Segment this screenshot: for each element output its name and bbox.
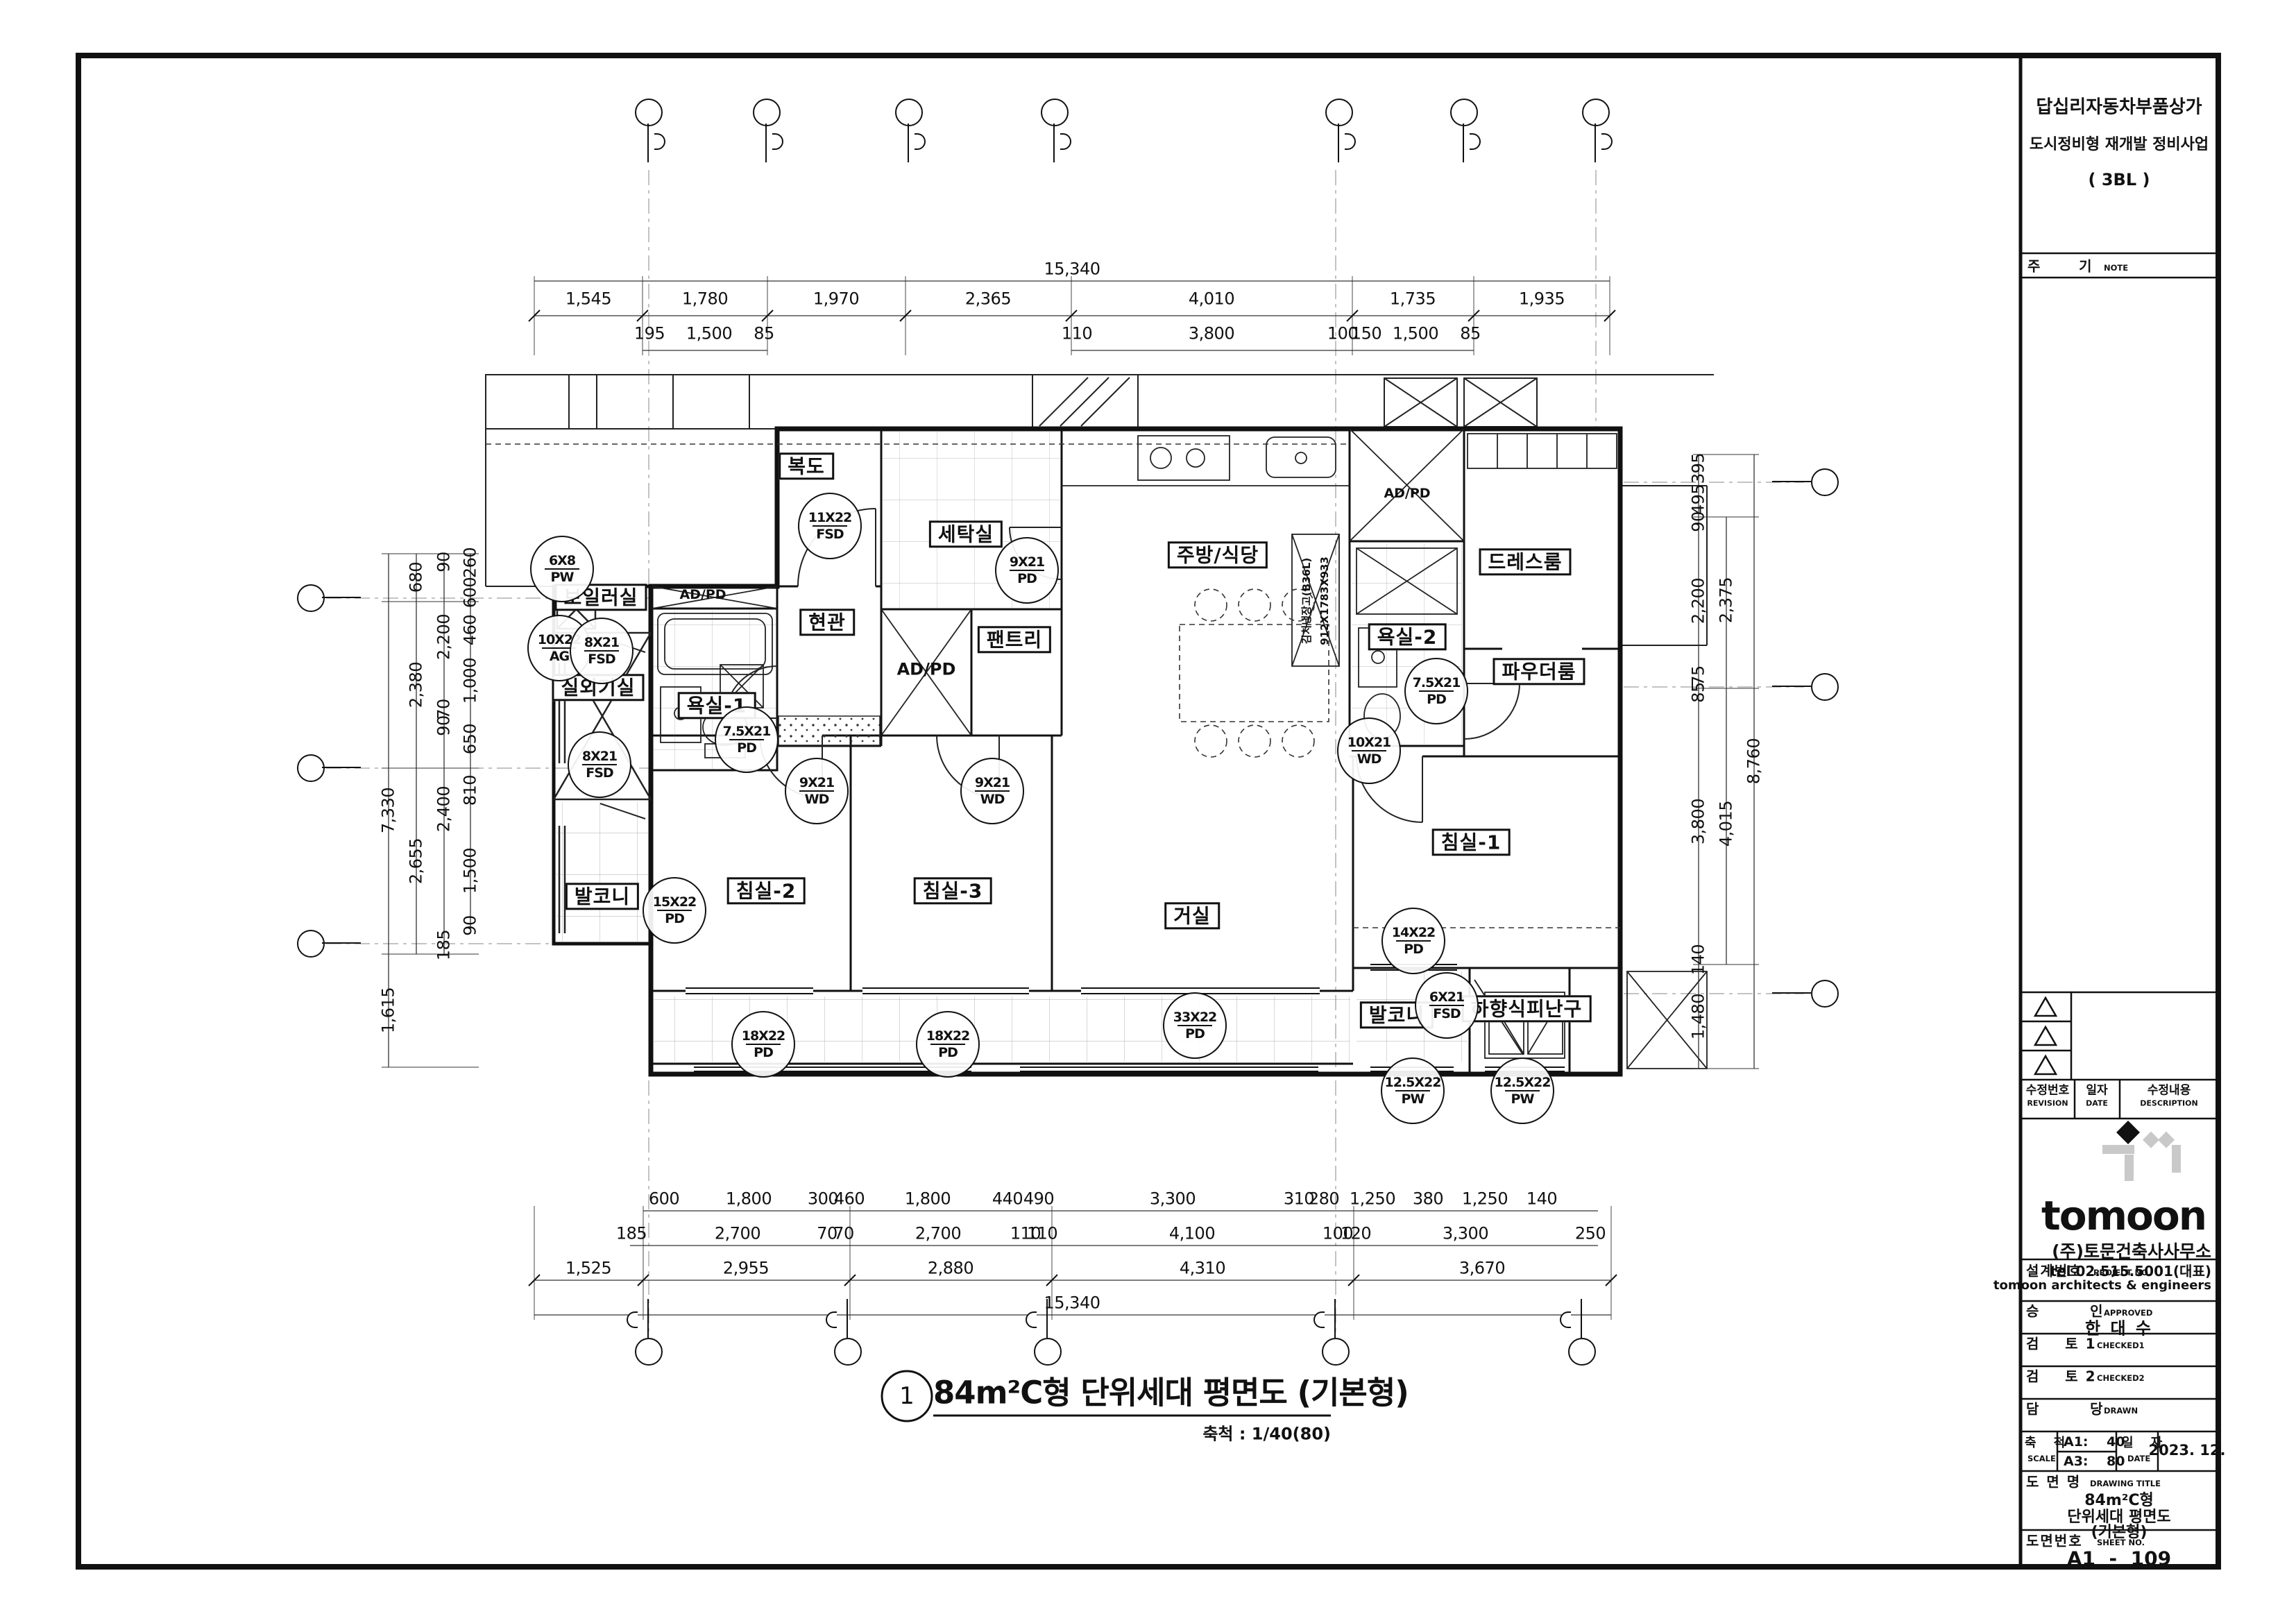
plan-title-number: 1 [899, 1382, 915, 1410]
dimension-label: 460 [834, 1190, 865, 1207]
door-window-tag: 33X22PD [1163, 992, 1227, 1059]
door-window-tag: 12.5X22PW [1381, 1057, 1445, 1124]
project-title-line1: 답십리자동차부품상가 [2036, 93, 2202, 119]
scale-kr: 축 척 [2025, 1433, 2065, 1451]
dimension-label: 15,340 [1044, 260, 1100, 278]
dimension-label: 1,500 [461, 848, 479, 894]
drawn-en: DRAWN [2104, 1406, 2138, 1416]
title-block: 답십리자동차부품상가 도시정비형 재개발 정비사업 ( 3BL ) 주 기 NO… [2021, 56, 2218, 1567]
grid-bubble [297, 584, 325, 612]
shaft-label: AD/PD [897, 661, 956, 678]
shaft-label: AD/PD [1384, 487, 1430, 501]
dimension-label: 4,100 [1169, 1225, 1215, 1242]
rev-no-kr: 수정번호 [2026, 1080, 2070, 1098]
door-window-tag: 9X21WD [960, 758, 1024, 824]
dimension-label: 4,010 [1189, 290, 1234, 307]
dimension-label: 85 [1460, 325, 1481, 342]
grid-bubble [1811, 468, 1839, 496]
dwgtitle-kr: 도 면 명 [2026, 1471, 2081, 1491]
dimension-label: 110 [1062, 325, 1092, 342]
room-label: 침실-3 [914, 877, 992, 904]
dimension-label: 2,655 [407, 838, 425, 884]
rev-date-en: DATE [2086, 1099, 2108, 1108]
room-label: 주방/식당 [1168, 541, 1268, 568]
sheetno-en: SHEET NO. [2097, 1538, 2145, 1547]
grid-bubble [834, 1338, 862, 1366]
grid-bubble [297, 754, 325, 782]
grid-bubble [895, 99, 923, 126]
dimension-label: 185 [435, 930, 452, 960]
checked2-kr: 검 토 2 [2026, 1366, 2097, 1386]
dimension-label: 1,935 [1519, 290, 1565, 307]
dimension-label: 2,380 [407, 662, 425, 708]
dimension-label: 3,670 [1459, 1259, 1505, 1277]
dimension-label: 1,525 [566, 1259, 611, 1277]
dimension-label: 2,700 [715, 1225, 760, 1242]
dimension-label: 85 [754, 325, 774, 342]
dimension-label: 1,800 [726, 1190, 772, 1207]
dimension-label: 650 [461, 724, 479, 754]
dimension-label: 1,970 [813, 290, 859, 307]
room-label: 복도 [779, 452, 834, 479]
dimension-label: 1,250 [1350, 1190, 1395, 1207]
dimension-label: 2,375 [1717, 577, 1735, 623]
dimension-label: 600 [461, 577, 479, 608]
rev-desc-en: DESCRIPTION [2140, 1099, 2197, 1108]
dimension-label: 90 [435, 552, 452, 572]
shaft-label: 김치냉장고(B36L) [1302, 558, 1313, 645]
note-header-kr: 주 기 [2027, 255, 2093, 275]
dimension-label: 110 [1027, 1225, 1057, 1242]
dimension-label: 2,400 [435, 786, 452, 832]
dimension-label: 120 [1341, 1225, 1371, 1242]
checked2-en: CHECKED2 [2097, 1373, 2145, 1383]
room-label: 팬트리 [978, 626, 1051, 653]
dimension-label: 85 [1690, 682, 1707, 703]
door-window-tag: 8X21FSD [568, 731, 631, 798]
dimension-label: 495 [1690, 484, 1707, 515]
grid-bubble [1041, 99, 1069, 126]
grid-bubble [1811, 673, 1839, 701]
dimension-label: 8,760 [1745, 738, 1762, 784]
dimension-label: 15,340 [1044, 1294, 1100, 1311]
rev-date-kr: 일자 [2086, 1080, 2107, 1098]
grid-bubble [1811, 980, 1839, 1008]
door-window-tag: 7.5X21PD [1404, 658, 1468, 724]
door-window-tag: 8X21FSD [570, 618, 633, 684]
date-value: 2023. 12. [2149, 1442, 2226, 1459]
dimension-label: 1,250 [1462, 1190, 1508, 1207]
grid-bubble [1450, 99, 1478, 126]
scale-a3: A3: 80 [2064, 1454, 2125, 1469]
dimension-label: 440 [992, 1190, 1023, 1207]
drawing-sheet: 복도세탁실주방/식당드레스룸파우더룸욕실-2욕실-1현관팬트리보일러실실외기실발… [0, 0, 2296, 1623]
dimension-label: 2,200 [435, 614, 452, 660]
sheetno-value: A1 - 109 [2067, 1547, 2171, 1570]
door-window-tag: 9X21PD [995, 537, 1059, 604]
dimension-label: 395 [1690, 453, 1707, 484]
dimension-label: 70 [833, 1225, 854, 1242]
project-title-line3: ( 3BL ) [2089, 170, 2150, 189]
dimension-label: 2,365 [965, 290, 1011, 307]
dimension-label: 1,800 [905, 1190, 951, 1207]
grid-bubble [1322, 1338, 1350, 1366]
dimension-label: 490 [1023, 1190, 1054, 1207]
shaft-label: AD/PD [679, 588, 726, 602]
dimension-label: 1,500 [686, 325, 732, 342]
scale-en: SCALE [2027, 1454, 2056, 1463]
grid-bubble [1034, 1338, 1062, 1366]
room-label: 드레스룸 [1479, 548, 1571, 575]
grid-bubble [753, 99, 781, 126]
dimension-label: 1,615 [380, 987, 397, 1033]
dimension-label: 90 [435, 715, 452, 736]
dimension-label: 3,800 [1189, 325, 1234, 342]
room-label: 침실-2 [727, 877, 806, 904]
dimension-label: 2,200 [1690, 578, 1707, 624]
checked1-en: CHECKED1 [2097, 1341, 2145, 1350]
dimension-label: 1,500 [1393, 325, 1438, 342]
room-label: 세탁실 [929, 520, 1003, 547]
plan-scale-note: 축척 : 1/40(80) [1202, 1420, 1331, 1445]
firm-name-en: tomoon architects & engineers [1993, 1278, 2211, 1293]
dimension-label: 2,880 [928, 1259, 973, 1277]
dimension-label: 260 [461, 547, 479, 578]
door-window-tag: 14X22PD [1381, 908, 1445, 974]
dimension-label: 140 [1527, 1190, 1557, 1207]
grid-bubble [297, 930, 325, 958]
grid-bubble [1325, 99, 1353, 126]
room-label: 거실 [1164, 902, 1220, 929]
rev-desc-kr: 수정내용 [2148, 1080, 2191, 1098]
dimension-label: 90 [461, 915, 479, 936]
plan-title: 84m²C형 단위세대 평면도 (기본형) [933, 1368, 1409, 1413]
dimension-label: 1,000 [461, 658, 479, 704]
grid-bubble [1568, 1338, 1596, 1366]
door-window-tag: 18X22PD [916, 1011, 980, 1078]
dimension-label: 2,700 [915, 1225, 961, 1242]
room-label: 욕실-2 [1368, 623, 1447, 650]
room-label: 파우더룸 [1493, 658, 1585, 685]
dimension-label: 280 [1309, 1190, 1339, 1207]
door-window-tag: 18X22PD [731, 1011, 795, 1078]
dimension-label: 4,015 [1717, 801, 1735, 847]
rev-no-en: REVISION [2027, 1099, 2068, 1108]
projno-en: PROJECT NO. [2093, 1268, 2151, 1277]
dimension-label: 1,545 [566, 290, 611, 307]
dimension-label: 1,780 [682, 290, 728, 307]
dimension-label: 7,330 [380, 788, 397, 833]
dimension-label: 1,480 [1690, 994, 1707, 1039]
projno-kr: 설계번호 [2026, 1260, 2083, 1280]
dimension-label: 2,955 [723, 1259, 769, 1277]
dimension-label: 810 [461, 775, 479, 806]
door-window-tag: 10X21WD [1337, 717, 1401, 784]
room-label: 침실-1 [1432, 829, 1511, 856]
room-label: 현관 [799, 609, 855, 636]
dwgtitle-en: DRAWING TITLE [2090, 1479, 2161, 1488]
grid-bubble [635, 99, 663, 126]
logo-wordmark: tomoon [2041, 1192, 2206, 1239]
checked1-kr: 검 토 1 [2026, 1333, 2097, 1353]
shaft-label: 912X1783X933 [1320, 556, 1331, 645]
dimension-label: 3,300 [1443, 1225, 1488, 1242]
dimension-label: 185 [616, 1225, 647, 1242]
door-window-tag: 6X21FSD [1415, 972, 1479, 1039]
scale-a1: A1: 40 [2064, 1434, 2125, 1450]
dimension-label: 3,300 [1150, 1190, 1196, 1207]
dimension-label: 4,310 [1180, 1259, 1225, 1277]
dimension-label: 460 [461, 615, 479, 645]
dimension-label: 1,735 [1390, 290, 1436, 307]
dimension-label: 600 [649, 1190, 679, 1207]
dimension-label: 380 [1413, 1190, 1443, 1207]
dimension-label: 250 [1575, 1225, 1606, 1242]
room-label: 발코니 [566, 883, 639, 910]
door-window-tag: 12.5X22PW [1490, 1057, 1554, 1124]
dimension-label: 90 [1690, 511, 1707, 532]
project-title-line2: 도시정비형 재개발 정비사업 [2030, 132, 2209, 154]
dimension-label: 150 [1351, 325, 1381, 342]
grid-bubble [635, 1338, 663, 1366]
dimension-label: 140 [1690, 944, 1707, 975]
door-window-tag: 9X21WD [785, 758, 849, 824]
dimension-label: 680 [407, 562, 425, 593]
note-header-en: NOTE [2104, 263, 2128, 273]
dimension-label: 195 [634, 325, 665, 342]
dimension-label: 3,800 [1690, 799, 1707, 844]
grid-bubble [1582, 99, 1610, 126]
door-window-tag: 15X22PD [643, 877, 706, 944]
drawn-kr: 담 당 [2026, 1398, 2104, 1418]
door-window-tag: 6X8PW [530, 536, 594, 602]
door-window-tag: 7.5X21PD [715, 706, 779, 773]
room-label: 하향식피난구 [1462, 995, 1592, 1022]
date-en: DATE [2127, 1454, 2150, 1463]
door-window-tag: 11X22FSD [798, 493, 862, 559]
